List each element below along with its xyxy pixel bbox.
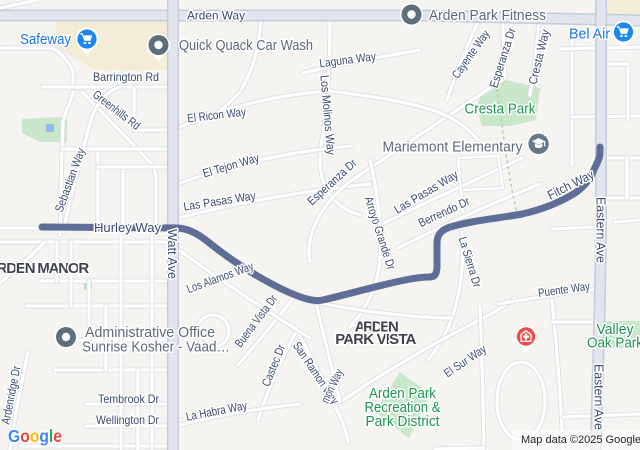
svg-text:ARDEN MANOR: ARDEN MANOR: [0, 260, 91, 277]
svg-text:Arden Way: Arden Way: [187, 9, 245, 23]
svg-text:Eastern Ave: Eastern Ave: [592, 364, 607, 430]
svg-text:Wellington Dr: Wellington Dr: [96, 413, 159, 427]
svg-text:Google: Google: [8, 426, 62, 446]
svg-text:Sunrise Kosher - Vaad…: Sunrise Kosher - Vaad…: [82, 339, 230, 356]
svg-text:Oak Park: Oak Park: [587, 335, 640, 352]
svg-text:Cresta Park: Cresta Park: [465, 101, 536, 118]
svg-text:Quick Quack Car Wash: Quick Quack Car Wash: [179, 37, 313, 54]
svg-text:Eastern Ave: Eastern Ave: [594, 197, 609, 263]
svg-text:Tembrook Dr: Tembrook Dr: [98, 392, 159, 406]
svg-text:Watt Ave: Watt Ave: [165, 229, 180, 279]
svg-text:Safeway: Safeway: [20, 31, 71, 48]
svg-text:Hurley Way: Hurley Way: [94, 220, 161, 235]
svg-text:Map data ©2025 Google: Map data ©2025 Google: [521, 434, 640, 446]
svg-text:Bel Air: Bel Air: [569, 26, 610, 43]
svg-text:Arden Park Fitness: Arden Park Fitness: [429, 7, 546, 24]
svg-text:PARK VISTA: PARK VISTA: [335, 331, 418, 348]
svg-text:Mariemont Elementary: Mariemont Elementary: [383, 139, 523, 156]
svg-text:Park District: Park District: [366, 413, 441, 430]
svg-text:Barrington Rd: Barrington Rd: [93, 70, 159, 84]
